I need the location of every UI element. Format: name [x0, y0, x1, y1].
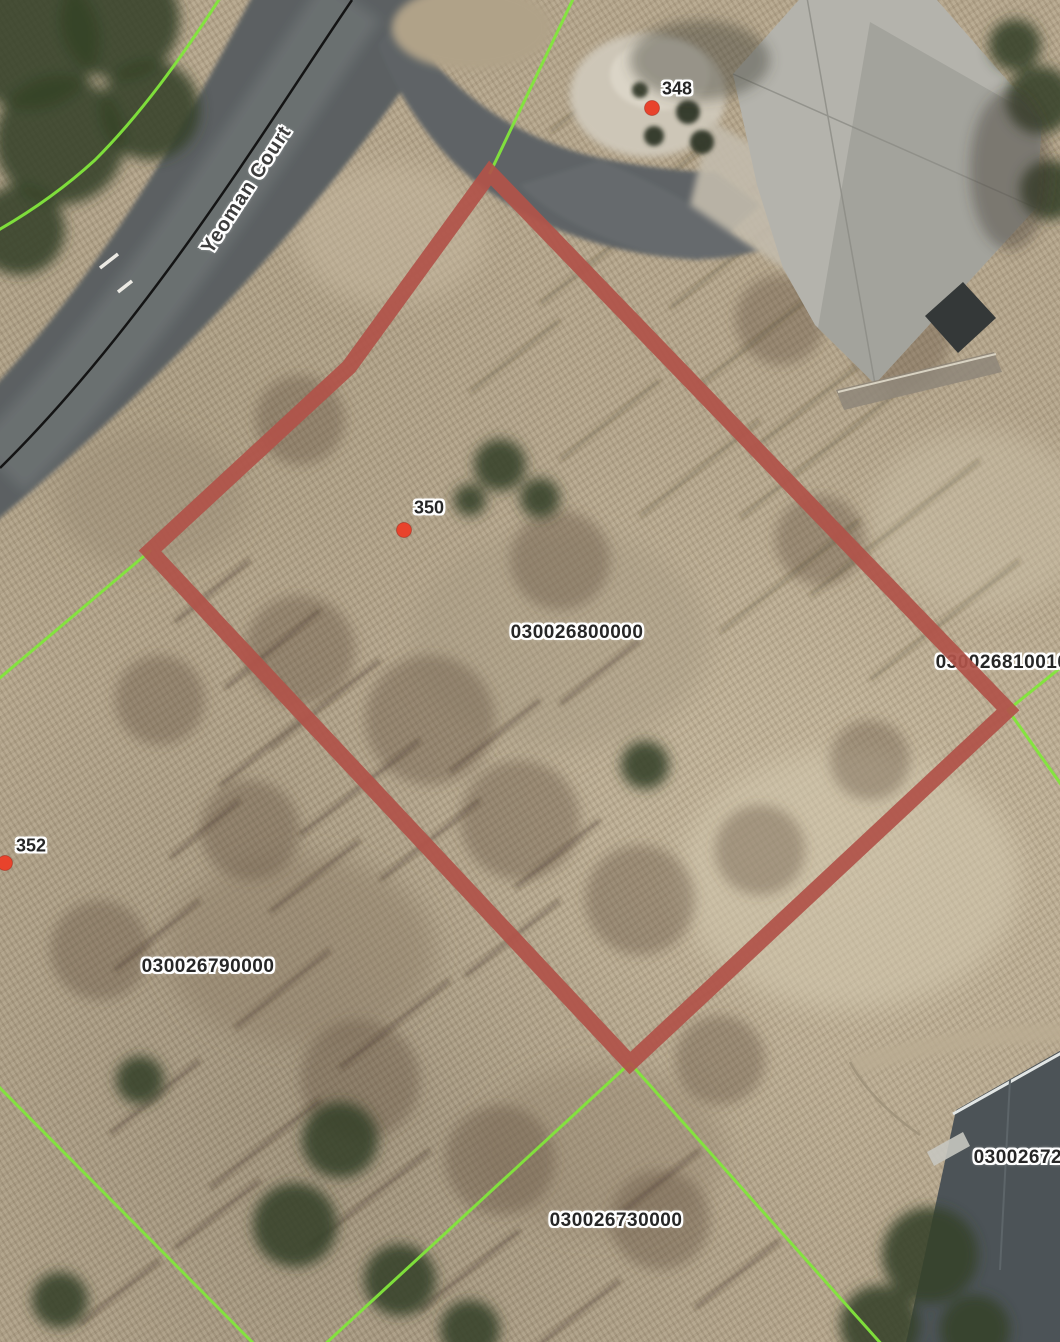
street-name-label: Yeoman Court	[197, 122, 297, 258]
parcel-id-label-west: 030026790000	[142, 956, 275, 978]
address-label-350: 350	[414, 498, 444, 519]
parcel-id-label-south: 030026730000	[550, 1210, 683, 1232]
parcel-id-label-southeast: 030026720000	[974, 1147, 1060, 1169]
address-label-352: 352	[16, 836, 46, 857]
address-label-348: 348	[662, 79, 692, 100]
map-canvas[interactable]: 030026810010 Yeoman Court 348 350 352 03…	[0, 0, 1060, 1342]
parcel-id-label-selected: 030026800000	[511, 622, 644, 644]
